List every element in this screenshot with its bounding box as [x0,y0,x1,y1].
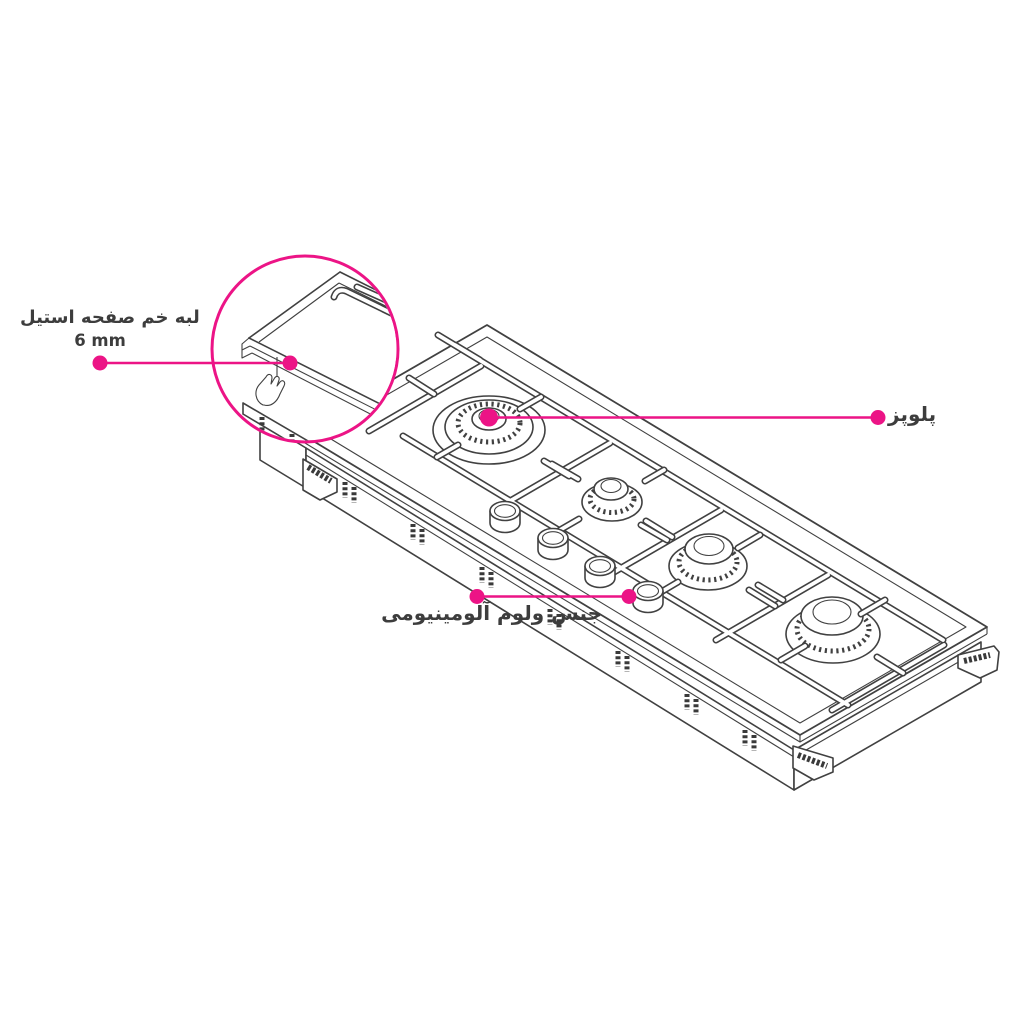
control-knob [538,529,568,560]
steel-edge-text: لبه خم صفحه استیل [20,307,200,328]
control-knob [490,502,520,533]
cooktop-diagram [0,0,1024,1024]
label-knob-material: جنس ولوم آلومینیومی [378,601,602,625]
steel-edge-value: 6 mm [20,330,180,351]
diagram-canvas: لبه خم صفحه استیل 6 mm پلوپز جنس ولوم آل… [0,0,1024,1024]
label-steel-edge: لبه خم صفحه استیل 6 mm [20,306,180,352]
control-knob [585,557,615,588]
label-main-burner: پلوپز [888,402,936,426]
control-knob-aluminum [633,582,663,613]
